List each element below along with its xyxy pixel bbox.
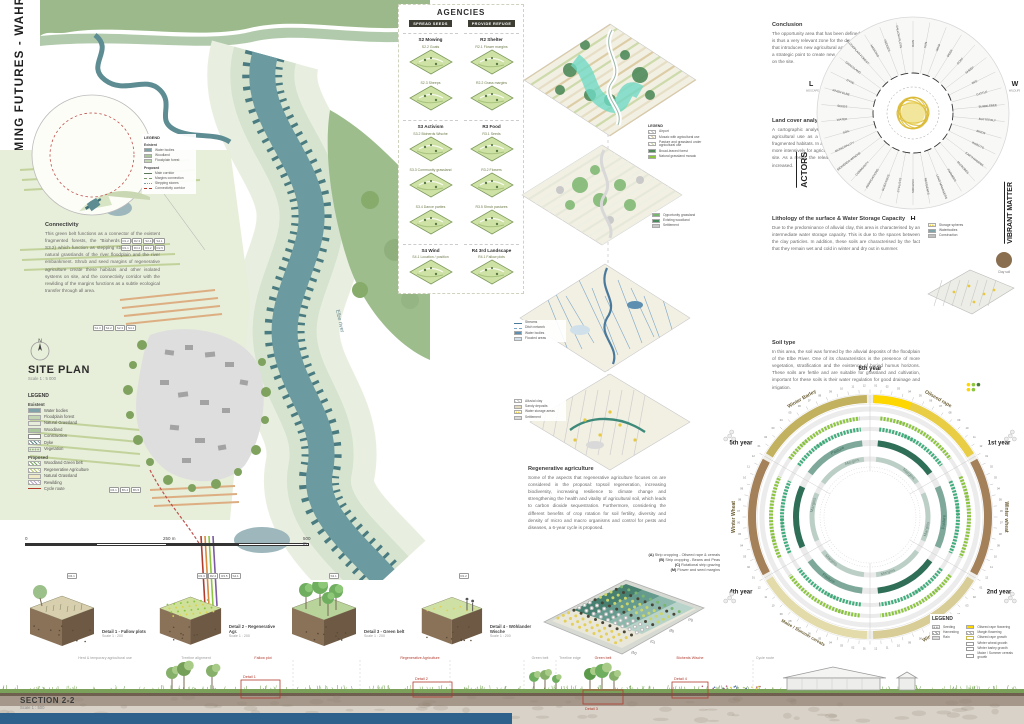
legend-swatch [648,155,656,159]
section-header: SECTION 2-2 Scale 1 : 500 [20,696,75,710]
legend-label: Dyke [44,441,53,446]
legend-swatch [144,154,152,158]
month-label: 05 [738,532,741,536]
legend-swatch [966,631,974,635]
soil-lithology-legend: Alluvial claySandy depositsWater storage… [514,398,566,421]
plant-sketch [724,599,728,603]
section-scale: Scale 1 : 500 [20,705,75,710]
legend-swatch [144,178,152,179]
section-annotation: Regenerative Agriculture [400,656,439,660]
agency-chip: S4.1 [126,325,136,331]
legend-label: Vegetation [44,447,63,452]
month-label: 07 [1000,521,1003,525]
legend-title: LEGEND [932,616,1022,622]
legend-label: Storage spheres [939,224,963,228]
actors-axis-letter: H [910,216,915,220]
section-annotation: Green belt [595,656,612,660]
legend-label: Broad-leaved forest [659,150,688,154]
map-legend-item: Opportunity grassland [652,213,706,217]
map-legend-item: Broad-leaved forest [648,149,706,153]
section-annotation: Green belt [532,656,549,660]
site-legend-item: Cycle route [28,487,123,492]
flowering-arc [874,399,910,406]
wheel-legend-item: Rain [932,636,963,640]
site-plan-scale: Scale 1 : 5 000 [28,376,90,381]
legend-label: Existing woodland [663,219,690,223]
plant-sketch [1012,599,1016,603]
detail-caption: Detail 1 - Fallow plotsScale 1 : 200 [102,629,146,652]
month-label: 08 [949,411,952,415]
legend-label: Rain [943,636,950,640]
ring-name-label: Pasture [941,514,947,529]
legend-label: Oilseed rape growth [977,636,1007,640]
ring-name-label: Margins [902,467,916,481]
legend-swatch [966,642,974,646]
ring-name-label: Field [770,533,776,542]
svg-text:(C): (C) [650,639,656,644]
month-label: 12 [985,576,988,580]
month-label: 10 [840,387,843,391]
year-label: 5th year [729,441,753,447]
month-label: 04 [829,640,832,644]
legend-label: Margin flowering [977,631,1001,635]
agencies-column-header: SPREAD SEEDS [409,20,452,27]
connectivity-legend: LEGENDExistentWater bodiesWoodlandFloodp… [142,134,196,194]
plant-sketch [1004,437,1008,441]
legend-swatch [144,148,152,152]
legend-swatch [28,461,41,466]
month-label: 10 [743,475,746,479]
inset-legend-item: Water bodies [144,148,194,152]
legend-label: Seeding [943,626,955,630]
legend-swatch [514,399,522,403]
detail-caption: Detail 4 - Wöhlander WischeScale 1 : 200 [490,624,544,652]
legend-label: Margins connection [155,177,184,181]
site-legend-item: Dyke [28,440,123,445]
legend-subheading: Existent [28,402,123,407]
soil-lithology-map-iso [530,374,690,470]
scale-bar: 0 250 m 500 m [25,536,315,546]
scalebar-end: 500 m [303,536,315,546]
actors-axis-sublabel: LANDSCAPE [806,88,819,92]
month-label: 06 [1000,509,1003,513]
flower-sketch [967,383,971,387]
detail-cut-label: Detail 4 [674,677,687,681]
connectivity-heading: Connectivity [45,222,160,228]
legend-label: Water bodies [44,409,68,414]
actors-axis-sublabel: WILDLIFE [1009,88,1020,92]
agency-thumbnail [409,172,453,203]
flower-sketch [967,388,971,392]
legend-swatch [28,415,41,420]
agency-chip-group: S1.3S2.2S2.3S4.1 [92,316,162,334]
month-label: 02 [973,595,976,599]
agency-chip: R3.2 [132,245,142,251]
month-label: 01 [863,646,866,650]
legend-swatch [514,328,522,329]
legend-swatch [28,480,41,485]
detail-caption: Detail 3 - Green beltScale 1 : 200 [364,629,404,652]
month-label: 11 [747,465,750,469]
detail-card: S3.1Detail 3 - Green beltScale 1 : 200 [288,566,414,652]
agency-chip: R1.1 [121,245,131,251]
plant-sketch [1010,430,1014,434]
wheel-legend-item: Margin flowering [966,631,1022,635]
legend-swatch [28,428,41,433]
legend-swatch [28,421,41,426]
month-label: 02 [851,645,854,649]
month-label: 03 [897,387,900,391]
legend-swatch [932,625,940,629]
site-legend-item: Woodland [28,428,123,433]
month-label: 10 [897,643,900,647]
month-label: 03 [743,554,746,558]
legend-label: Alluvial clay [525,400,542,404]
section-annotation: Herd & temporary agricultural use [78,656,132,660]
legend-swatch [514,331,522,335]
legend-swatch [144,183,152,184]
ring-name-label: Margins [880,567,896,576]
land-cover-legend: LEGENDAirportMosaic with agricultural us… [648,124,706,160]
ring-name-label: Beans [914,585,925,594]
agency-chip: S2.3 [115,325,125,331]
legend-label: Settlement [663,224,679,228]
month-label: 11 [851,385,854,389]
legend-swatch [514,323,522,324]
agency-group-title: S2 Mowing [403,33,458,42]
regenerative-heading: Regenerative agriculture [528,466,666,472]
section-annotation: Bioherds Wische [677,656,704,660]
plant-sketch [1004,599,1008,603]
month-label: 04 [997,486,1000,490]
legend-swatch [966,625,974,629]
agency-diamond-icon [409,49,453,75]
clay-sphere-icon [996,252,1012,268]
legend-label: Regenerative Agriculture [44,468,89,473]
agency-thumbnail [409,136,453,167]
legend-swatch [144,159,152,163]
month-label: 08 [738,498,741,502]
month-label: 09 [908,640,911,644]
agency-diamond-icon [409,85,453,111]
section-annotation: Treeline alignment [181,656,210,660]
detail-card: R1.2Detail 4 - Wöhlander WischeScale 1 :… [418,566,544,652]
agency-chip: S2.2 [104,325,114,331]
crop-name-label: Winter Barley [787,388,818,409]
agency-chip: R2.2 [208,573,218,579]
month-label: 10 [966,426,969,430]
site-plan-header: SITE PLAN Scale 1 : 5 000 [28,364,90,381]
detail-card: R1.3R2.2R3.5S4.1Detail 2 - Regenerative … [156,566,282,652]
legend-swatch [514,410,522,414]
map-legend-item: Pasture and grassland under agricultural… [648,141,706,148]
month-label: 09 [997,543,1000,547]
legend-swatch [28,488,41,489]
inset-legend-item: Main corridor [144,172,194,176]
crop-name-label: Oilseed rape [924,389,953,409]
legend-label: Woodland [155,154,170,158]
site-plan-legend: LEGENDExistentWater bodiesFloodplain for… [28,393,123,493]
plant-sketch [724,437,728,441]
wheel-legend-item: Oilseed rape flowering [966,625,1022,629]
legend-swatch [144,188,152,189]
map-legend-item: Flooded areas [514,337,566,341]
legend-label: Winter wheat growth [977,642,1007,646]
inset-legend-item: Margins connection [144,177,194,181]
legend-label: Water storage areas [525,410,555,414]
crop-name-label: Winter wheat [1003,501,1009,532]
legend-subheading: Proposed [28,455,123,460]
flower-sketch [972,383,976,387]
month-label: 12 [874,646,877,650]
year-label: 2nd year [987,590,1012,596]
detail-iso-cube [26,582,98,652]
ring-name-label: Beans [815,439,826,448]
site-legend-item: Natural Grassland [28,474,123,479]
month-label: 01 [985,454,988,458]
legend-label: Sandy deposits [525,405,548,409]
detail-scale: Scale 1 : 200 [364,634,404,638]
topsoil-band [0,693,1024,696]
inset-legend-item: Connectivity corridor [144,187,194,191]
agency-chip: R2.5 [155,245,165,251]
actors-wheel: RAINSUNWINDDEERGOATSHEEPBEECATTLEBUMBLEB… [806,6,1020,220]
month-label: 01 [874,384,877,388]
year-label: 1st year [988,441,1011,447]
ring-name-label: Pasture [793,504,799,519]
legend-swatch [514,405,522,409]
legend-swatch [28,474,41,479]
month-label: 10 [994,554,997,558]
wheel-legend-item: Winter wheat growth [966,642,1022,646]
site-legend-item: Vegetation [28,447,123,452]
map-legend-item: Ditch network [514,326,566,330]
legend-swatch [648,142,656,146]
legend-label: Construction [939,234,958,238]
legend-label: Water bodies [155,149,174,153]
wheel-legend-item: Winter barley growth [966,647,1022,651]
month-label: 11 [973,435,976,439]
agency-diamond-icon [409,172,453,198]
legend-swatch [932,631,940,635]
agency-group-title: S3 Activism [403,120,458,129]
legend-label: Waterbodies [939,229,957,233]
month-label: 12 [979,444,982,448]
site-legend-item: Natural Grassland [28,421,123,426]
detail-scale: Scale 1 : 200 [490,634,544,638]
actor-spoke-label: VISITORS [911,179,915,193]
actors-axis-letter: W [1012,81,1019,88]
month-label: 03 [966,604,969,608]
section-annotation: Fallow plot [254,656,271,660]
plant-sketch [1012,437,1016,441]
actor-spoke-label: RAIN [911,40,915,47]
legend-title: LEGEND [28,393,123,399]
month-label: 01 [979,586,982,590]
month-label: 03 [994,475,997,479]
plant-sketch [1008,596,1012,600]
month-label: 09 [829,389,832,393]
elbe-water-bar [0,713,512,724]
legend-swatch [514,337,522,341]
legend-swatch [648,149,656,153]
legend-label: Ditch network [525,326,545,330]
legend-label: Stepping stones [155,182,179,186]
scalebar-bar [25,543,310,546]
legend-swatch [928,234,936,238]
wheel-legend-item: Oilseed rape growth [966,636,1022,640]
month-label: 02 [747,565,750,569]
ring-name-label: Beans [826,592,838,600]
detail-chip-group: R1.2 [458,564,469,582]
legend-label: Flooded areas [525,337,546,341]
site-legend-item: Water bodies [28,408,123,413]
legend-label: Oilseed rape flowering [977,626,1010,630]
detail-caption: Detail 2 - Regenerative Agr.Scale 1 : 20… [229,624,282,652]
legend-label: Natural grassland mosaic [659,155,696,159]
legend-subheading: Existent [144,143,194,147]
map-legend-item: Mosaic with agricultural use [648,135,706,139]
legend-label: Water bodies [525,332,544,336]
month-label: 11 [764,595,767,599]
legend-swatch [28,408,41,413]
year-label: 6th year [858,366,882,372]
wheel-legend-item: Harvesting [932,631,963,635]
legend-swatch [28,440,41,445]
month-label: 10 [772,604,775,608]
detail-chip-group: S3.1 [328,564,339,582]
legend-label: Floodplain forest [44,415,74,420]
legend-label: Mosaic with agricultural use [659,136,700,140]
plant-sketch [730,430,734,434]
regenerative-text: Regenerative agriculture Some of the asp… [528,466,666,531]
village-wahrenberg [136,329,264,481]
legend-label: Cycle route [44,487,65,492]
house-building [899,678,915,690]
ring-name-label: Pasture [830,445,846,456]
legend-label: Winter barley growth [977,647,1007,651]
section-drawing: Detail 1Detail 2Detail 3Detail 4 [0,652,1024,724]
month-label: 11 [990,565,993,569]
plant-sketch [730,592,734,596]
lithology-iso-map: Clay soil [924,244,1022,336]
poster-canvas: 2 FARMING FUTURES - WAHRENBERG [0,0,1024,724]
plant-sketch [732,599,736,603]
agency-chip: R1.2 [459,573,469,579]
legend-swatch [932,636,940,640]
legend-label: Woodland [44,428,62,433]
legend-swatch [652,219,660,223]
site-plan-title: SITE PLAN [28,364,90,376]
month-label: 08 [999,532,1002,536]
legend-label: Opportunity grassland [663,214,695,218]
agency-chip: S1.3 [93,325,103,331]
inset-legend-item: Stepping stones [144,182,194,186]
svg-text:(B): (B) [669,628,675,633]
detail-cut-label: Detail 3 [585,707,598,711]
legend-swatch [28,447,41,452]
legend-label: Natural Grassland [44,474,77,479]
ring-name-label: Pasture [895,578,911,589]
plant-sketch [1010,592,1014,596]
barn-building [787,678,880,690]
section-annotation: Cycle route [756,656,774,660]
month-label: 09 [957,418,960,422]
legend-label: Main corridor [155,172,174,176]
north-compass-icon: N [28,338,52,362]
legend-label: Woodland Green belt [44,461,83,466]
month-label: 03 [772,426,775,430]
vibrant-matter-label: VIBRANT MATTER [1004,182,1014,244]
inset-legend-item: Floodplain forest [144,159,194,163]
legend-swatch [28,468,41,473]
agency-chip: R3.5 [219,573,229,579]
water-network-legend: StreamsDitch networkWater bodiesFlooded … [514,320,566,342]
ring-name-label: Field [835,608,844,614]
scalebar-zero: 0 [25,536,28,541]
soil-type-heading: Soil type [772,340,920,346]
detail-scale: Scale 1 : 200 [229,634,282,638]
month-label: 12 [758,586,761,590]
ring-name-label: Margins [844,457,860,466]
month-label: 04 [740,543,743,547]
legend-swatch [966,636,974,640]
month-label: 01 [758,444,761,448]
legend-label: Construction [44,434,67,439]
legend-label: Connectivity corridor [155,187,185,191]
lithology-block: Lithology of the surface & Water Storage… [772,216,920,252]
ring-name-label: Field [964,492,970,501]
north-letter: N [38,339,42,345]
scheme-legend-item: (A) Strip cropping - Oilseed rape & cere… [598,553,720,557]
legend-label: Natural Grassland [44,421,77,426]
legend-label: Airport [659,130,669,134]
legend-subheading: Proposed [144,166,194,170]
legend-swatch [514,416,522,420]
crop-name-label: Winter Wheat [731,501,737,533]
month-label: 12 [752,454,755,458]
site-legend-item: Construction [28,434,123,439]
regenerative-body: Some of the aspects that regenerative ag… [528,474,666,531]
month-label: 02 [764,435,767,439]
detail-scale: Scale 1 : 200 [102,634,146,638]
agency-diamond-icon [409,209,453,235]
actors-label: ACTORS [796,152,809,188]
agency-chip: Bh.5 [131,487,141,493]
agency-chip-group: R1.1R3.2R4.2R2.5 [120,236,190,254]
svg-text:(A): (A) [688,617,694,622]
section-title: SECTION 2-2 [20,696,75,705]
plant-sketch [728,596,732,600]
agency-thumbnail [409,259,453,290]
legend-swatch [28,434,41,439]
legend-swatch [648,135,656,139]
map-legend-item: Water bodies [514,331,566,335]
month-label: 05 [789,411,792,415]
legend-label: Rewilding [44,481,62,486]
ring-name-label: Beans [780,518,785,529]
plant-sketch [728,434,732,438]
legend-label: Floodplain forest [155,159,179,163]
actors-axis-letter: L [809,81,814,88]
agency-thumbnail [409,85,453,116]
ring-name-label: Beans [955,505,960,516]
legend-swatch [144,173,152,174]
month-label: 03 [840,643,843,647]
month-label: 12 [863,384,866,388]
agencies-column: SPREAD SEEDSS2 MowingS2.2 GoatsS2.3 Shee… [403,20,458,290]
detail-cut-label: Detail 2 [415,677,428,681]
